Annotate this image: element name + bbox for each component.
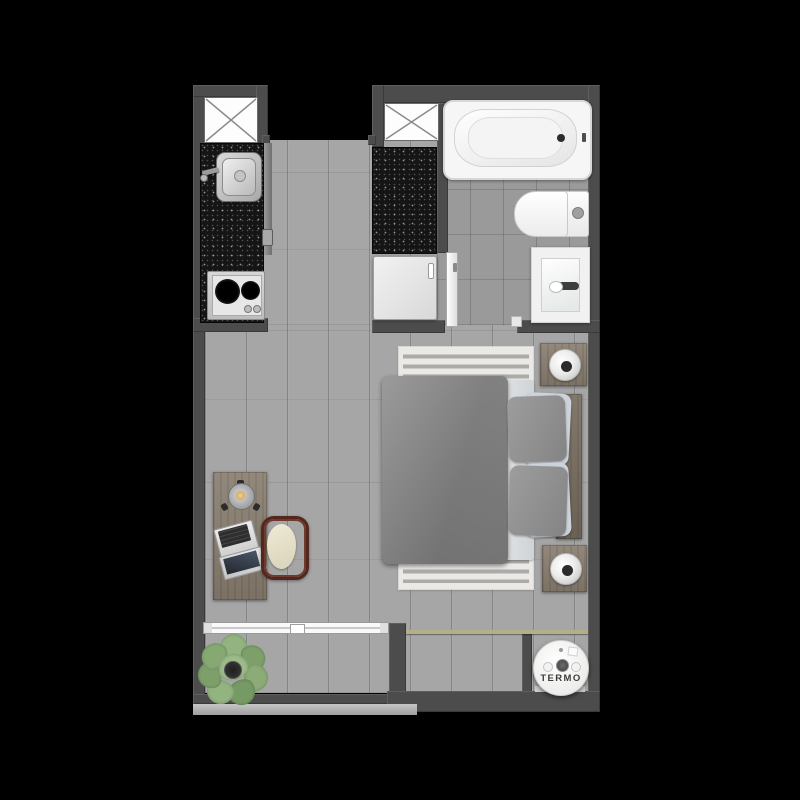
heater-knob-center <box>556 659 569 672</box>
glass-partition <box>406 630 588 634</box>
laptop <box>211 519 265 578</box>
door-handle-icon <box>453 263 457 272</box>
heater-knob-left <box>543 662 553 672</box>
wall-balcony-divider <box>389 623 406 693</box>
table-lamp-top-shade <box>561 361 572 372</box>
sink-drain <box>234 170 246 182</box>
stove-burner-large <box>215 279 240 304</box>
wall-termo-niche <box>522 631 532 693</box>
bathtub-basin-inner <box>468 117 563 159</box>
desk-lamp-leg <box>220 502 229 511</box>
desk-lamp-leg <box>252 502 261 511</box>
water-heater-label: TERMO <box>534 673 588 684</box>
cabinet-handle <box>262 229 273 246</box>
desk <box>213 472 267 600</box>
wall-bathroom-south-left <box>372 320 445 333</box>
chair-seat <box>267 524 296 569</box>
wall-right <box>588 85 600 712</box>
bathroom-door <box>446 252 458 327</box>
vanity-drain-icon <box>549 281 563 293</box>
bathtub <box>443 100 592 180</box>
toilet-bowl <box>514 191 568 237</box>
under-counter-appliance <box>373 256 437 320</box>
nightstand-top <box>540 343 587 386</box>
bed-duvet <box>382 376 508 564</box>
heater-knob-right <box>571 662 581 672</box>
nightstand-bottom <box>542 545 587 592</box>
stove-knob <box>253 305 261 313</box>
wall-entry-stub-right <box>368 135 376 145</box>
heater-dot <box>559 648 563 652</box>
potted-plant <box>196 632 270 706</box>
kitchen-vent-shaft <box>204 97 258 143</box>
stove <box>207 271 265 320</box>
desk-lamp-bulb <box>236 491 245 500</box>
desk-chair <box>261 516 309 580</box>
water-heater: TERMO <box>533 640 589 696</box>
window-slider-handle <box>290 624 305 634</box>
window-end-cap <box>380 623 388 633</box>
heater-panel-icon <box>567 646 578 656</box>
kitchen-sink <box>216 152 262 202</box>
door-jamb-stub <box>511 316 522 327</box>
stove-burner-small <box>241 281 260 300</box>
pillow-bottom <box>508 465 568 537</box>
stove-knob <box>244 305 252 313</box>
toilet-flush-button <box>572 207 584 219</box>
bathtub-drain-icon <box>557 134 565 142</box>
galley-counter <box>372 147 437 254</box>
bathroom-vent-shaft <box>384 103 439 141</box>
bathroom-vanity <box>531 247 590 323</box>
floorplan-canvas: TERMO <box>0 0 800 800</box>
pillow-top <box>507 395 567 463</box>
bathtub-faucet-icon <box>582 133 586 142</box>
appliance-handle <box>428 263 434 279</box>
toilet <box>514 191 587 235</box>
sink-faucet-handle <box>200 174 208 182</box>
crossed-box-icon <box>385 104 438 140</box>
crossed-box-icon <box>205 98 257 142</box>
plant-pot <box>224 661 242 679</box>
table-lamp-bottom-shade <box>562 565 573 576</box>
